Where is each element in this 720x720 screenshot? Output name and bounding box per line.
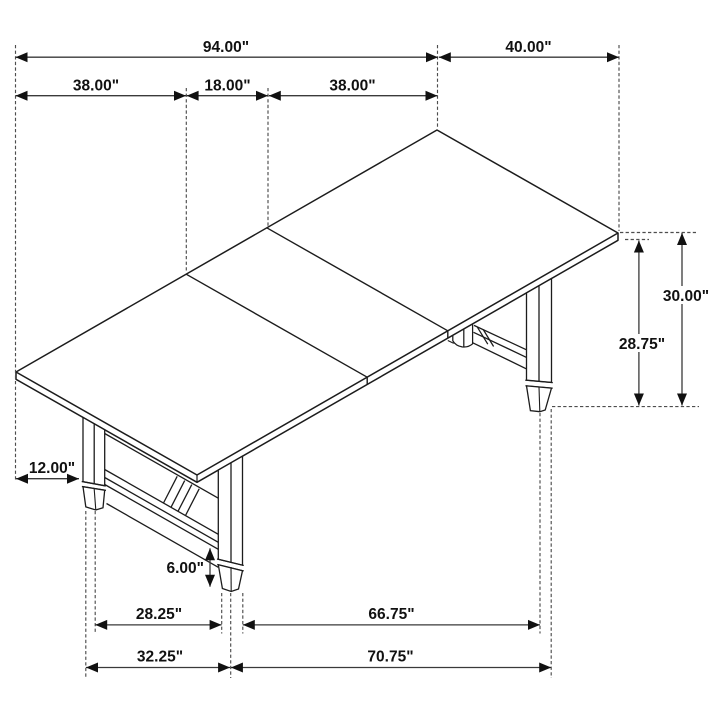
svg-text:6.00": 6.00" bbox=[166, 560, 204, 577]
svg-text:30.00": 30.00" bbox=[663, 288, 709, 305]
svg-text:12.00": 12.00" bbox=[29, 460, 75, 477]
svg-text:38.00": 38.00" bbox=[329, 78, 375, 95]
svg-text:94.00": 94.00" bbox=[203, 39, 249, 56]
svg-text:70.75": 70.75" bbox=[367, 649, 413, 666]
svg-text:38.00": 38.00" bbox=[73, 78, 119, 95]
svg-text:28.25": 28.25" bbox=[136, 606, 182, 623]
svg-text:18.00": 18.00" bbox=[204, 78, 250, 95]
svg-text:40.00": 40.00" bbox=[505, 39, 551, 56]
svg-text:32.25": 32.25" bbox=[137, 649, 183, 666]
svg-text:28.75": 28.75" bbox=[619, 336, 665, 353]
svg-text:66.75": 66.75" bbox=[368, 606, 414, 623]
